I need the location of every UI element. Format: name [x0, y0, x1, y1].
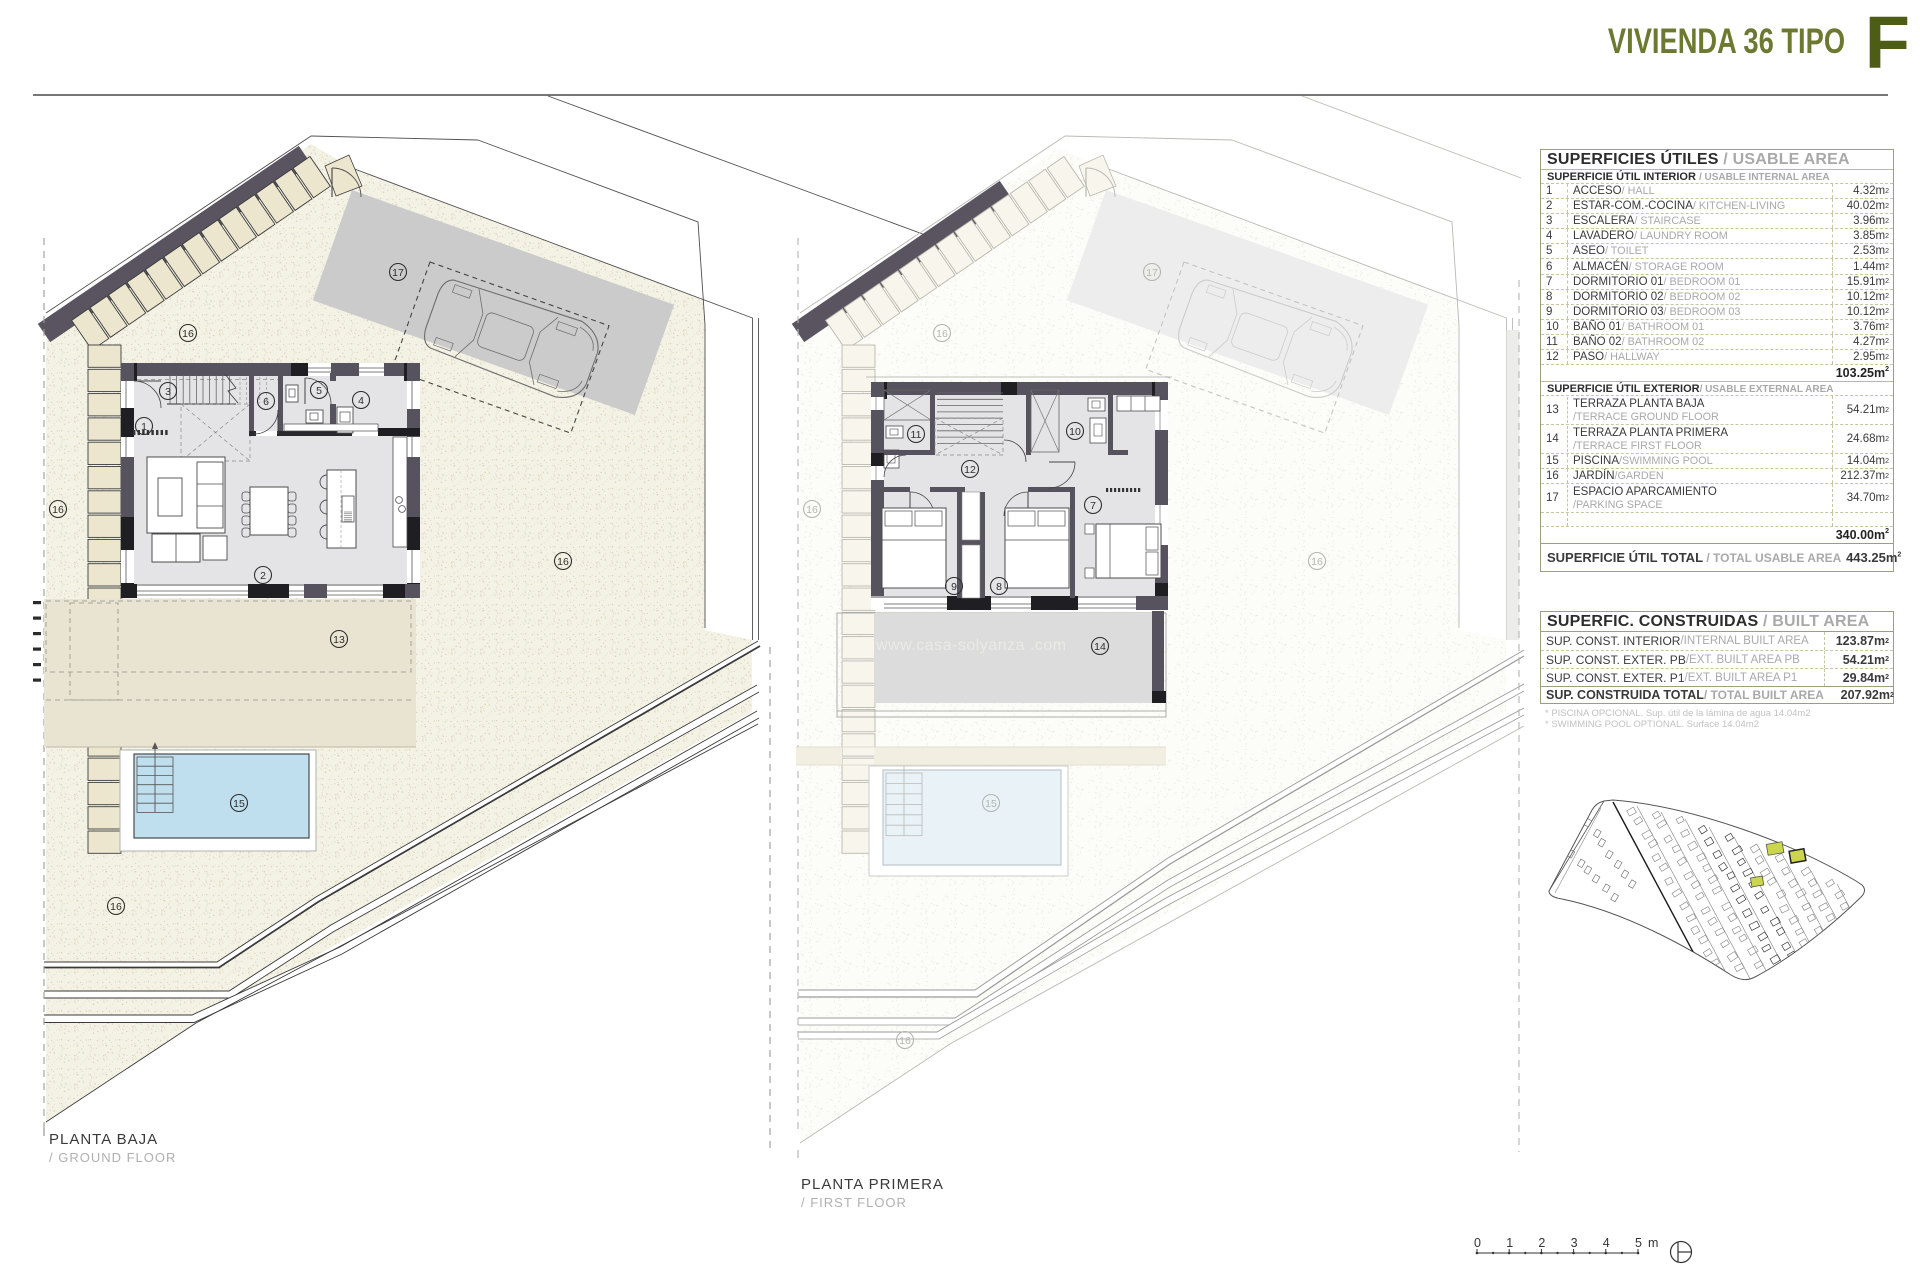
- svg-text:15: 15: [233, 798, 245, 810]
- svg-text:10: 10: [1069, 426, 1081, 438]
- svg-text:11: 11: [911, 429, 922, 441]
- svg-text:16: 16: [1311, 556, 1323, 568]
- svg-text:8: 8: [996, 581, 1002, 593]
- svg-text:www.casa-solyanza .com: www.casa-solyanza .com: [875, 637, 1067, 654]
- svg-text:2: 2: [260, 570, 266, 582]
- svg-text:1: 1: [1506, 1236, 1513, 1250]
- svg-text:16: 16: [936, 328, 948, 340]
- svg-text:17: 17: [392, 267, 404, 279]
- svg-text:16: 16: [52, 504, 64, 516]
- svg-text:m: m: [1648, 1236, 1658, 1250]
- svg-text:3: 3: [165, 386, 171, 398]
- svg-text:16: 16: [182, 328, 194, 340]
- svg-text:4: 4: [1603, 1236, 1610, 1250]
- svg-text:7: 7: [1090, 500, 1096, 512]
- svg-text:12: 12: [964, 464, 976, 476]
- svg-text:6: 6: [263, 396, 269, 408]
- svg-text:3: 3: [1571, 1236, 1578, 1250]
- svg-text:17: 17: [1146, 267, 1158, 279]
- svg-text:16: 16: [557, 556, 569, 568]
- svg-text:15: 15: [985, 798, 997, 810]
- svg-text:1: 1: [141, 421, 147, 433]
- svg-text:9: 9: [951, 581, 957, 593]
- svg-text:0: 0: [1474, 1236, 1481, 1250]
- svg-text:13: 13: [333, 634, 345, 646]
- svg-text:5: 5: [316, 385, 322, 397]
- svg-text:16: 16: [110, 901, 122, 913]
- svg-text:16: 16: [806, 504, 818, 516]
- svg-text:4: 4: [358, 395, 364, 407]
- svg-text:2: 2: [1538, 1236, 1545, 1250]
- svg-text:5: 5: [1635, 1236, 1642, 1250]
- svg-text:14: 14: [1094, 641, 1106, 653]
- svg-text:16: 16: [899, 1035, 911, 1047]
